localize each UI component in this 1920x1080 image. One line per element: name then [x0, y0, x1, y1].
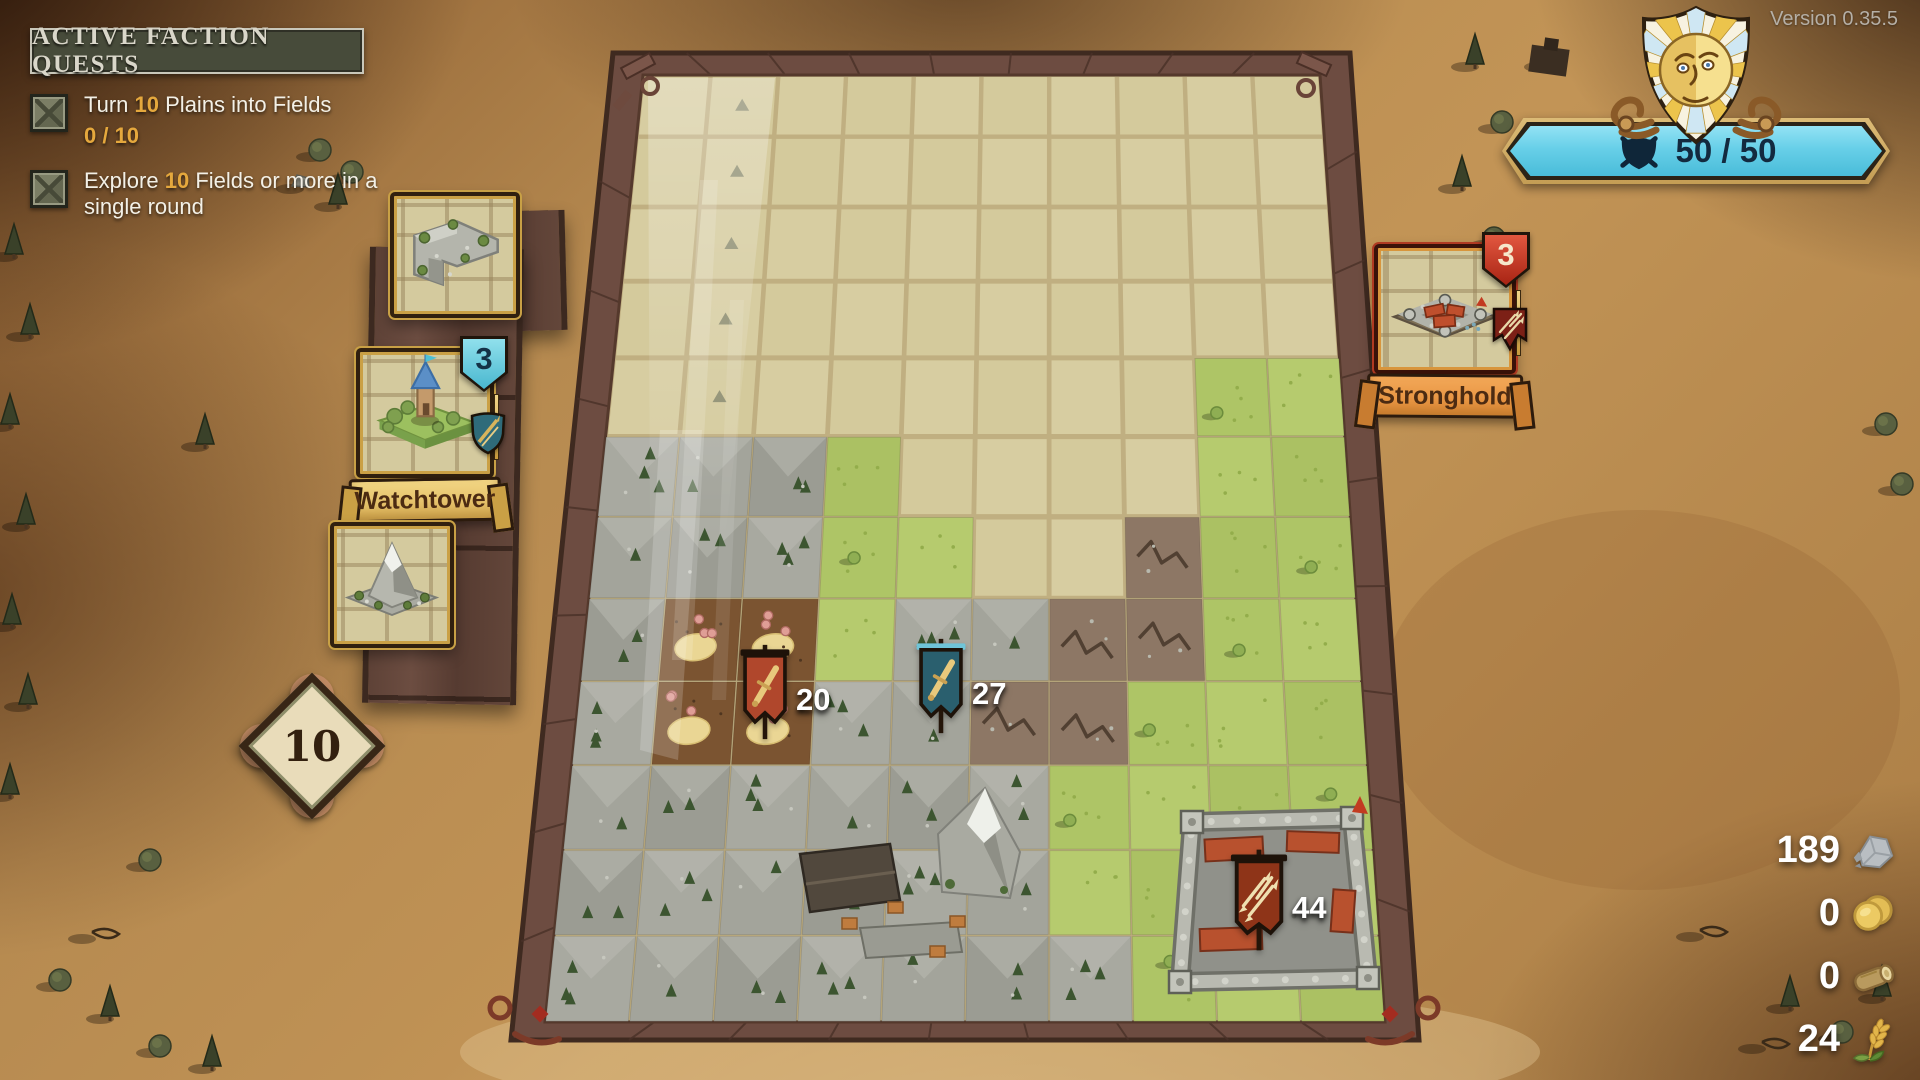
- stone-icon: [1850, 827, 1896, 873]
- board-tile[interactable]: [834, 284, 904, 356]
- board-tile[interactable]: [1194, 284, 1264, 356]
- board-tile[interactable]: [976, 439, 1046, 514]
- board-tile[interactable]: [1051, 77, 1115, 135]
- board-tile[interactable]: [1262, 209, 1332, 278]
- quest-checkbox-icon: [30, 94, 68, 132]
- quest-panel: ACTIVE FACTION QUESTS Turn 10 Plains int…: [30, 28, 410, 221]
- board-tile[interactable]: [1198, 437, 1275, 516]
- board-tile[interactable]: [761, 284, 833, 356]
- quest-amount: 10: [165, 168, 189, 193]
- board-tile[interactable]: [756, 360, 829, 434]
- board-tile[interactable]: [1051, 209, 1118, 278]
- board-tile[interactable]: [979, 284, 1047, 356]
- card-count: 3: [460, 341, 508, 377]
- quest-text: Explore 10 Fields or more in a single ro…: [84, 168, 392, 222]
- board-tile[interactable]: [1119, 77, 1184, 135]
- board-tile[interactable]: [1051, 284, 1119, 356]
- board-tile[interactable]: [1050, 766, 1130, 849]
- resource-row-wheat: 24: [1798, 1016, 1896, 1062]
- board-tile[interactable]: [1265, 284, 1337, 356]
- deck-count: 10: [256, 690, 368, 802]
- sun-crest-icon: [1596, 2, 1796, 154]
- resource-row-stone: 189: [1777, 827, 1896, 873]
- board-tile[interactable]: [975, 519, 1047, 595]
- board-tile[interactable]: [842, 139, 910, 205]
- board-tile[interactable]: [906, 284, 975, 356]
- board-tile[interactable]: [1050, 682, 1128, 764]
- card-count: 3: [1482, 237, 1530, 273]
- card-name-ribbon: Watchtower: [349, 477, 502, 524]
- army-count: 27: [972, 676, 1006, 712]
- board-tile[interactable]: [1121, 209, 1189, 278]
- board-tile[interactable]: [1052, 519, 1124, 595]
- card-stronghold[interactable]: 3 Stronghold: [1374, 244, 1516, 374]
- board-tile[interactable]: [1125, 518, 1202, 598]
- quest-item: Turn 10 Plains into Fields 0 / 10: [30, 92, 410, 150]
- army-flag-red[interactable]: 20: [736, 640, 856, 748]
- board-tile[interactable]: [1052, 439, 1122, 514]
- hand-card-mountain-tile[interactable]: [330, 522, 454, 648]
- army-count: 20: [796, 682, 830, 718]
- board-tile[interactable]: [909, 209, 977, 278]
- board-tile[interactable]: [1203, 599, 1283, 680]
- wheat-icon: [1850, 1016, 1896, 1062]
- board-tile[interactable]: [1268, 359, 1345, 436]
- board-tile[interactable]: [838, 209, 907, 278]
- quest-text-part: Explore: [84, 168, 165, 193]
- board-tile[interactable]: [1189, 139, 1257, 205]
- board-tile[interactable]: [901, 439, 973, 514]
- board-tile[interactable]: [980, 209, 1047, 278]
- board-tile[interactable]: [1280, 599, 1361, 680]
- army-banner-sword-icon: [736, 640, 794, 744]
- board-tile[interactable]: [1206, 682, 1287, 764]
- board-tile[interactable]: [1124, 360, 1194, 434]
- resource-panel: 189 0 0: [1777, 827, 1896, 1062]
- wood-icon: [1850, 953, 1896, 999]
- board-tile[interactable]: [1052, 360, 1121, 434]
- faction-shield-icon: [469, 410, 507, 456]
- board-tile[interactable]: [1272, 437, 1350, 516]
- board-tile[interactable]: [1276, 518, 1355, 598]
- board-tile[interactable]: [845, 77, 911, 135]
- quest-text-part: Turn: [84, 92, 135, 117]
- quest-amount: 10: [135, 92, 159, 117]
- board-tile[interactable]: [912, 139, 979, 205]
- quest-item: Explore 10 Fields or more in a single ro…: [30, 168, 410, 222]
- board-tile[interactable]: [914, 77, 979, 135]
- quest-checkbox-icon: [30, 170, 68, 208]
- board-tile[interactable]: [981, 139, 1046, 205]
- resource-row-wood: 0: [1819, 953, 1896, 999]
- board-tile[interactable]: [824, 437, 901, 516]
- board-tile[interactable]: [896, 518, 973, 598]
- enemy-banner-icon: [1491, 306, 1529, 352]
- board-tile[interactable]: [1191, 209, 1260, 278]
- board-tile[interactable]: [978, 360, 1047, 434]
- board-tile[interactable]: [1200, 518, 1278, 598]
- board-tile[interactable]: [1050, 851, 1131, 935]
- army-count: 44: [1292, 890, 1326, 926]
- board-tile[interactable]: [777, 77, 844, 135]
- coins-count: 0: [1819, 892, 1840, 935]
- board-tile[interactable]: [767, 209, 837, 278]
- board-tile[interactable]: [1123, 284, 1192, 356]
- deck-counter[interactable]: 10: [256, 690, 368, 802]
- board-tile[interactable]: [1128, 682, 1208, 764]
- board-tile[interactable]: [1051, 139, 1116, 205]
- quest-panel-title: ACTIVE FACTION QUESTS: [30, 28, 364, 74]
- board-tile[interactable]: [830, 360, 902, 434]
- board-tile[interactable]: [772, 139, 841, 205]
- army-banner-arrows-icon: [1228, 844, 1290, 956]
- coins-icon: [1850, 890, 1896, 936]
- card-name-ribbon: Stronghold: [1367, 373, 1523, 418]
- board-tile[interactable]: [1127, 599, 1205, 680]
- hand-card-watchtower[interactable]: 3 Watchtower: [356, 348, 494, 478]
- board-tile[interactable]: [1284, 682, 1366, 764]
- army-flag-teal[interactable]: 27: [912, 634, 1032, 742]
- board-tile[interactable]: [904, 360, 974, 434]
- board-tile[interactable]: [983, 77, 1047, 135]
- card-count-badge: 3: [460, 336, 508, 392]
- stone-count: 189: [1777, 829, 1840, 872]
- wood-count: 0: [1819, 955, 1840, 998]
- army-flag-rust[interactable]: 44: [1228, 844, 1354, 960]
- army-banner-sword-icon: [912, 634, 970, 738]
- board-tile[interactable]: [1050, 599, 1127, 680]
- board-tile[interactable]: [1126, 439, 1198, 514]
- board-tile[interactable]: [1258, 139, 1327, 205]
- board-tile[interactable]: [1120, 139, 1187, 205]
- resource-row-coins: 0: [1819, 890, 1896, 936]
- wheat-count: 24: [1798, 1018, 1840, 1061]
- quest-text-part: Plains into Fields: [159, 92, 331, 117]
- quest-progress: 0 / 10: [84, 123, 392, 150]
- mountain-tile-icon: [334, 526, 450, 644]
- rock-corner-tile-icon: [394, 196, 516, 314]
- game-screen: ACTIVE FACTION QUESTS Turn 10 Plains int…: [0, 0, 1920, 1080]
- board-tile[interactable]: [1195, 359, 1270, 436]
- quest-text: Turn 10 Plains into Fields 0 / 10: [84, 92, 392, 150]
- card-count-badge: 3: [1482, 232, 1530, 288]
- board-tile[interactable]: [1187, 77, 1253, 135]
